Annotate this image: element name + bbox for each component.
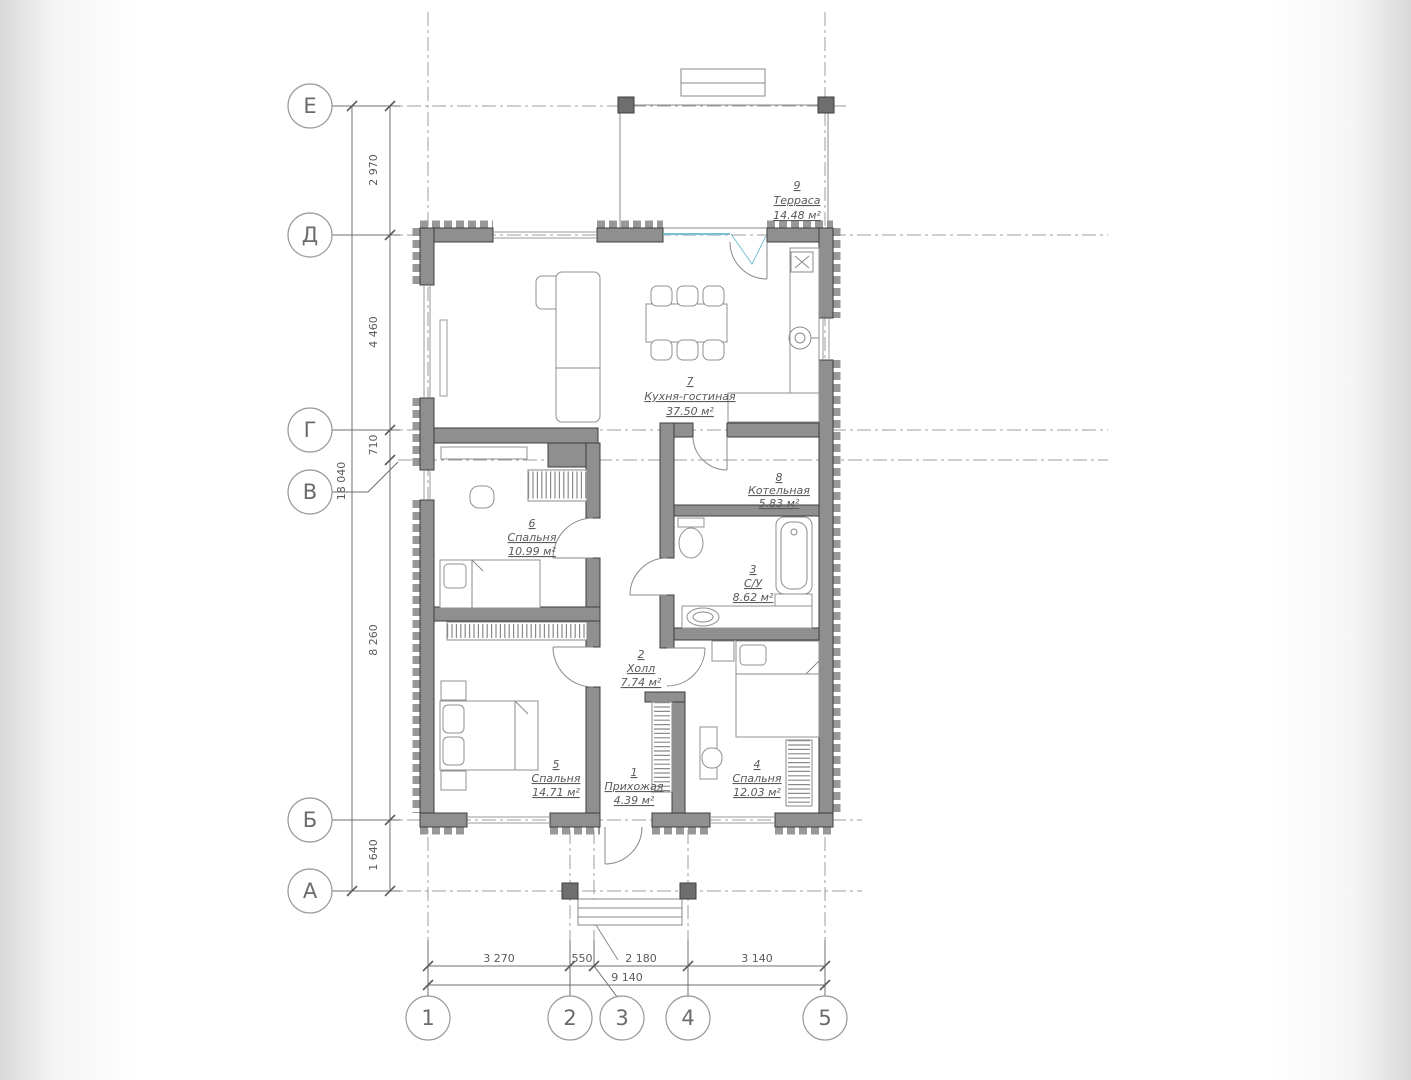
room-7-area: 37.50 м²	[666, 405, 714, 418]
furniture-bedroom-6	[440, 447, 540, 608]
axis-row-D: Д	[288, 213, 332, 257]
chair	[703, 286, 724, 306]
room-9-name: Терраса	[774, 194, 821, 207]
axis-col-4: 4	[666, 996, 710, 1040]
room-label-hall: 2 Холл 7.74 м²	[621, 648, 662, 689]
room-5-name: Спальня	[532, 772, 581, 785]
room-2-name: Холл	[626, 662, 655, 675]
room-8-area: 5.83 м²	[759, 497, 800, 510]
dim-h-seg-2: 550	[572, 952, 593, 965]
dim-h-total: 9 140	[611, 971, 643, 984]
room-4-area: 12.03 м²	[733, 786, 781, 799]
dim-v-seg-5: 1 640	[367, 839, 380, 871]
room-9-number: 9	[794, 179, 801, 192]
axis-grid	[332, 12, 1108, 940]
axis-col-5-label: 5	[818, 1006, 831, 1030]
door-bedroom-6	[553, 518, 593, 558]
porch-post-right	[680, 883, 696, 899]
porch-post-left	[562, 883, 578, 899]
terrace-post-left	[618, 97, 634, 113]
dim-v-seg-4: 8 260	[367, 624, 380, 656]
room-label-terrace: 9 Терраса 14.48 м²	[773, 179, 821, 222]
desk	[441, 447, 527, 459]
room-6-number: 6	[529, 517, 536, 530]
axis-row-B: Б	[288, 798, 332, 842]
axis-markers-bottom: 1 2 3 4 5	[406, 996, 847, 1040]
sofa-chaise	[556, 272, 600, 422]
room-3-area: 8.62 м²	[733, 591, 774, 604]
window-kitchen-top	[663, 234, 766, 264]
axis-row-B-label: Б	[303, 808, 317, 832]
dim-v-seg-2: 4 460	[367, 316, 380, 348]
axis-col-2-label: 2	[563, 1006, 576, 1030]
door-boiler-room	[693, 437, 727, 470]
floor-plan-page: 7 Кухня-гостиная 37.50 м² 9 Терраса 14.4…	[0, 0, 1411, 1080]
room-7-name: Кухня-гостиная	[644, 390, 736, 403]
porch	[562, 883, 696, 960]
door-bedroom-5	[553, 647, 593, 687]
axis-col-5: 5	[803, 996, 847, 1040]
axis-row-G: Г	[288, 408, 332, 452]
dim-h-seg-1: 3 270	[483, 952, 515, 965]
axis-row-E: Е	[288, 84, 332, 128]
room-label-bedroom-5: 5 Спальня 14.71 м²	[532, 758, 581, 799]
room-3-name: С/У	[744, 577, 763, 590]
kitchen-counter	[790, 248, 819, 393]
axis-col-2: 2	[548, 996, 592, 1040]
room-4-number: 4	[754, 758, 761, 771]
room-3-number: 3	[750, 563, 757, 576]
axis-col-3: 3	[600, 996, 644, 1040]
axis-col-1: 1	[406, 996, 450, 1040]
room-2-number: 2	[638, 648, 645, 661]
pillow	[443, 737, 464, 765]
furniture-bedroom-5	[440, 681, 538, 790]
room-label-boiler: 8 Котельная 5.83 м²	[748, 471, 810, 510]
stool	[470, 486, 494, 508]
terrace-post-right	[818, 97, 834, 113]
chair	[702, 748, 722, 768]
room-1-name: Прихожая	[605, 780, 664, 793]
room-8-name: Котельная	[748, 484, 810, 497]
room-1-number: 1	[631, 766, 638, 779]
chair	[651, 340, 672, 360]
dimensions-bottom: 3 270 550 2 180 3 140 9 140	[423, 940, 830, 998]
room-6-name: Спальня	[508, 531, 557, 544]
axis-row-V: В	[288, 470, 332, 514]
axis-row-E-label: Е	[303, 94, 316, 118]
dim-v-seg-3: 710	[367, 435, 380, 456]
axis-markers-left: Е Д Г В Б А	[288, 84, 332, 913]
nightstand	[441, 681, 466, 700]
dim-h-seg-4: 3 140	[741, 952, 773, 965]
kitchen-counter-l	[728, 393, 819, 422]
toilet-tank	[678, 518, 704, 527]
washbasin	[687, 608, 719, 626]
room-label-bathroom: 3 С/У 8.62 м²	[733, 563, 774, 604]
pillow	[443, 705, 464, 733]
axis-row-G-label: Г	[304, 418, 317, 442]
room-label-bedroom-6: 6 Спальня 10.99 м²	[508, 517, 557, 558]
room-5-area: 14.71 м²	[532, 786, 580, 799]
floor-plan-drawing: 7 Кухня-гостиная 37.50 м² 9 Терраса 14.4…	[0, 0, 1411, 1080]
room-2-area: 7.74 м²	[621, 676, 662, 689]
room-label-bedroom-4: 4 Спальня 12.03 м²	[733, 758, 782, 799]
door-bathroom	[630, 558, 667, 595]
furniture-bathroom	[678, 517, 812, 628]
axis-row-A: А	[288, 869, 332, 913]
chair	[677, 286, 698, 306]
room-7-number: 7	[687, 375, 694, 388]
dim-v-seg-1: 2 970	[367, 154, 380, 186]
axis-row-D-label: Д	[302, 223, 318, 247]
dim-v-total: 18 040	[335, 462, 348, 501]
pillow	[740, 645, 766, 665]
window-living-left	[424, 285, 447, 398]
dim-h-seg-3: 2 180	[625, 952, 657, 965]
axis-col-3-label: 3	[615, 1006, 628, 1030]
nightstand	[441, 771, 466, 790]
chair	[651, 286, 672, 306]
porch-steps	[578, 899, 682, 925]
axis-row-V-label: В	[303, 480, 317, 504]
door-main-entrance	[605, 827, 642, 864]
chair	[703, 340, 724, 360]
room-4-name: Спальня	[733, 772, 782, 785]
door-terrace-entry	[730, 242, 767, 279]
axis-row-A-label: А	[303, 879, 318, 903]
toilet-bowl	[679, 528, 703, 558]
axis-col-4-label: 4	[681, 1006, 694, 1030]
window-left-small	[424, 470, 430, 500]
room-5-number: 5	[553, 758, 560, 771]
room-1-area: 4.39 м²	[614, 794, 655, 807]
radiator	[440, 320, 447, 396]
window-kitchen-right	[823, 318, 829, 360]
room-9-area: 14.48 м²	[773, 209, 821, 222]
room-8-number: 8	[776, 471, 783, 484]
room-label-kitchen-living: 7 Кухня-гостиная 37.50 м²	[644, 375, 736, 418]
chair	[677, 340, 698, 360]
pillow	[444, 564, 466, 588]
axis-col-1-label: 1	[421, 1006, 434, 1030]
washing-machine	[775, 594, 812, 606]
nightstand	[712, 641, 734, 661]
door-bedroom-4	[667, 648, 705, 686]
room-6-area: 10.99 м²	[508, 545, 556, 558]
dining-table	[646, 304, 727, 342]
dimensions-left: 18 040 2 970 4 460 710 8 260 1 640	[332, 101, 400, 896]
